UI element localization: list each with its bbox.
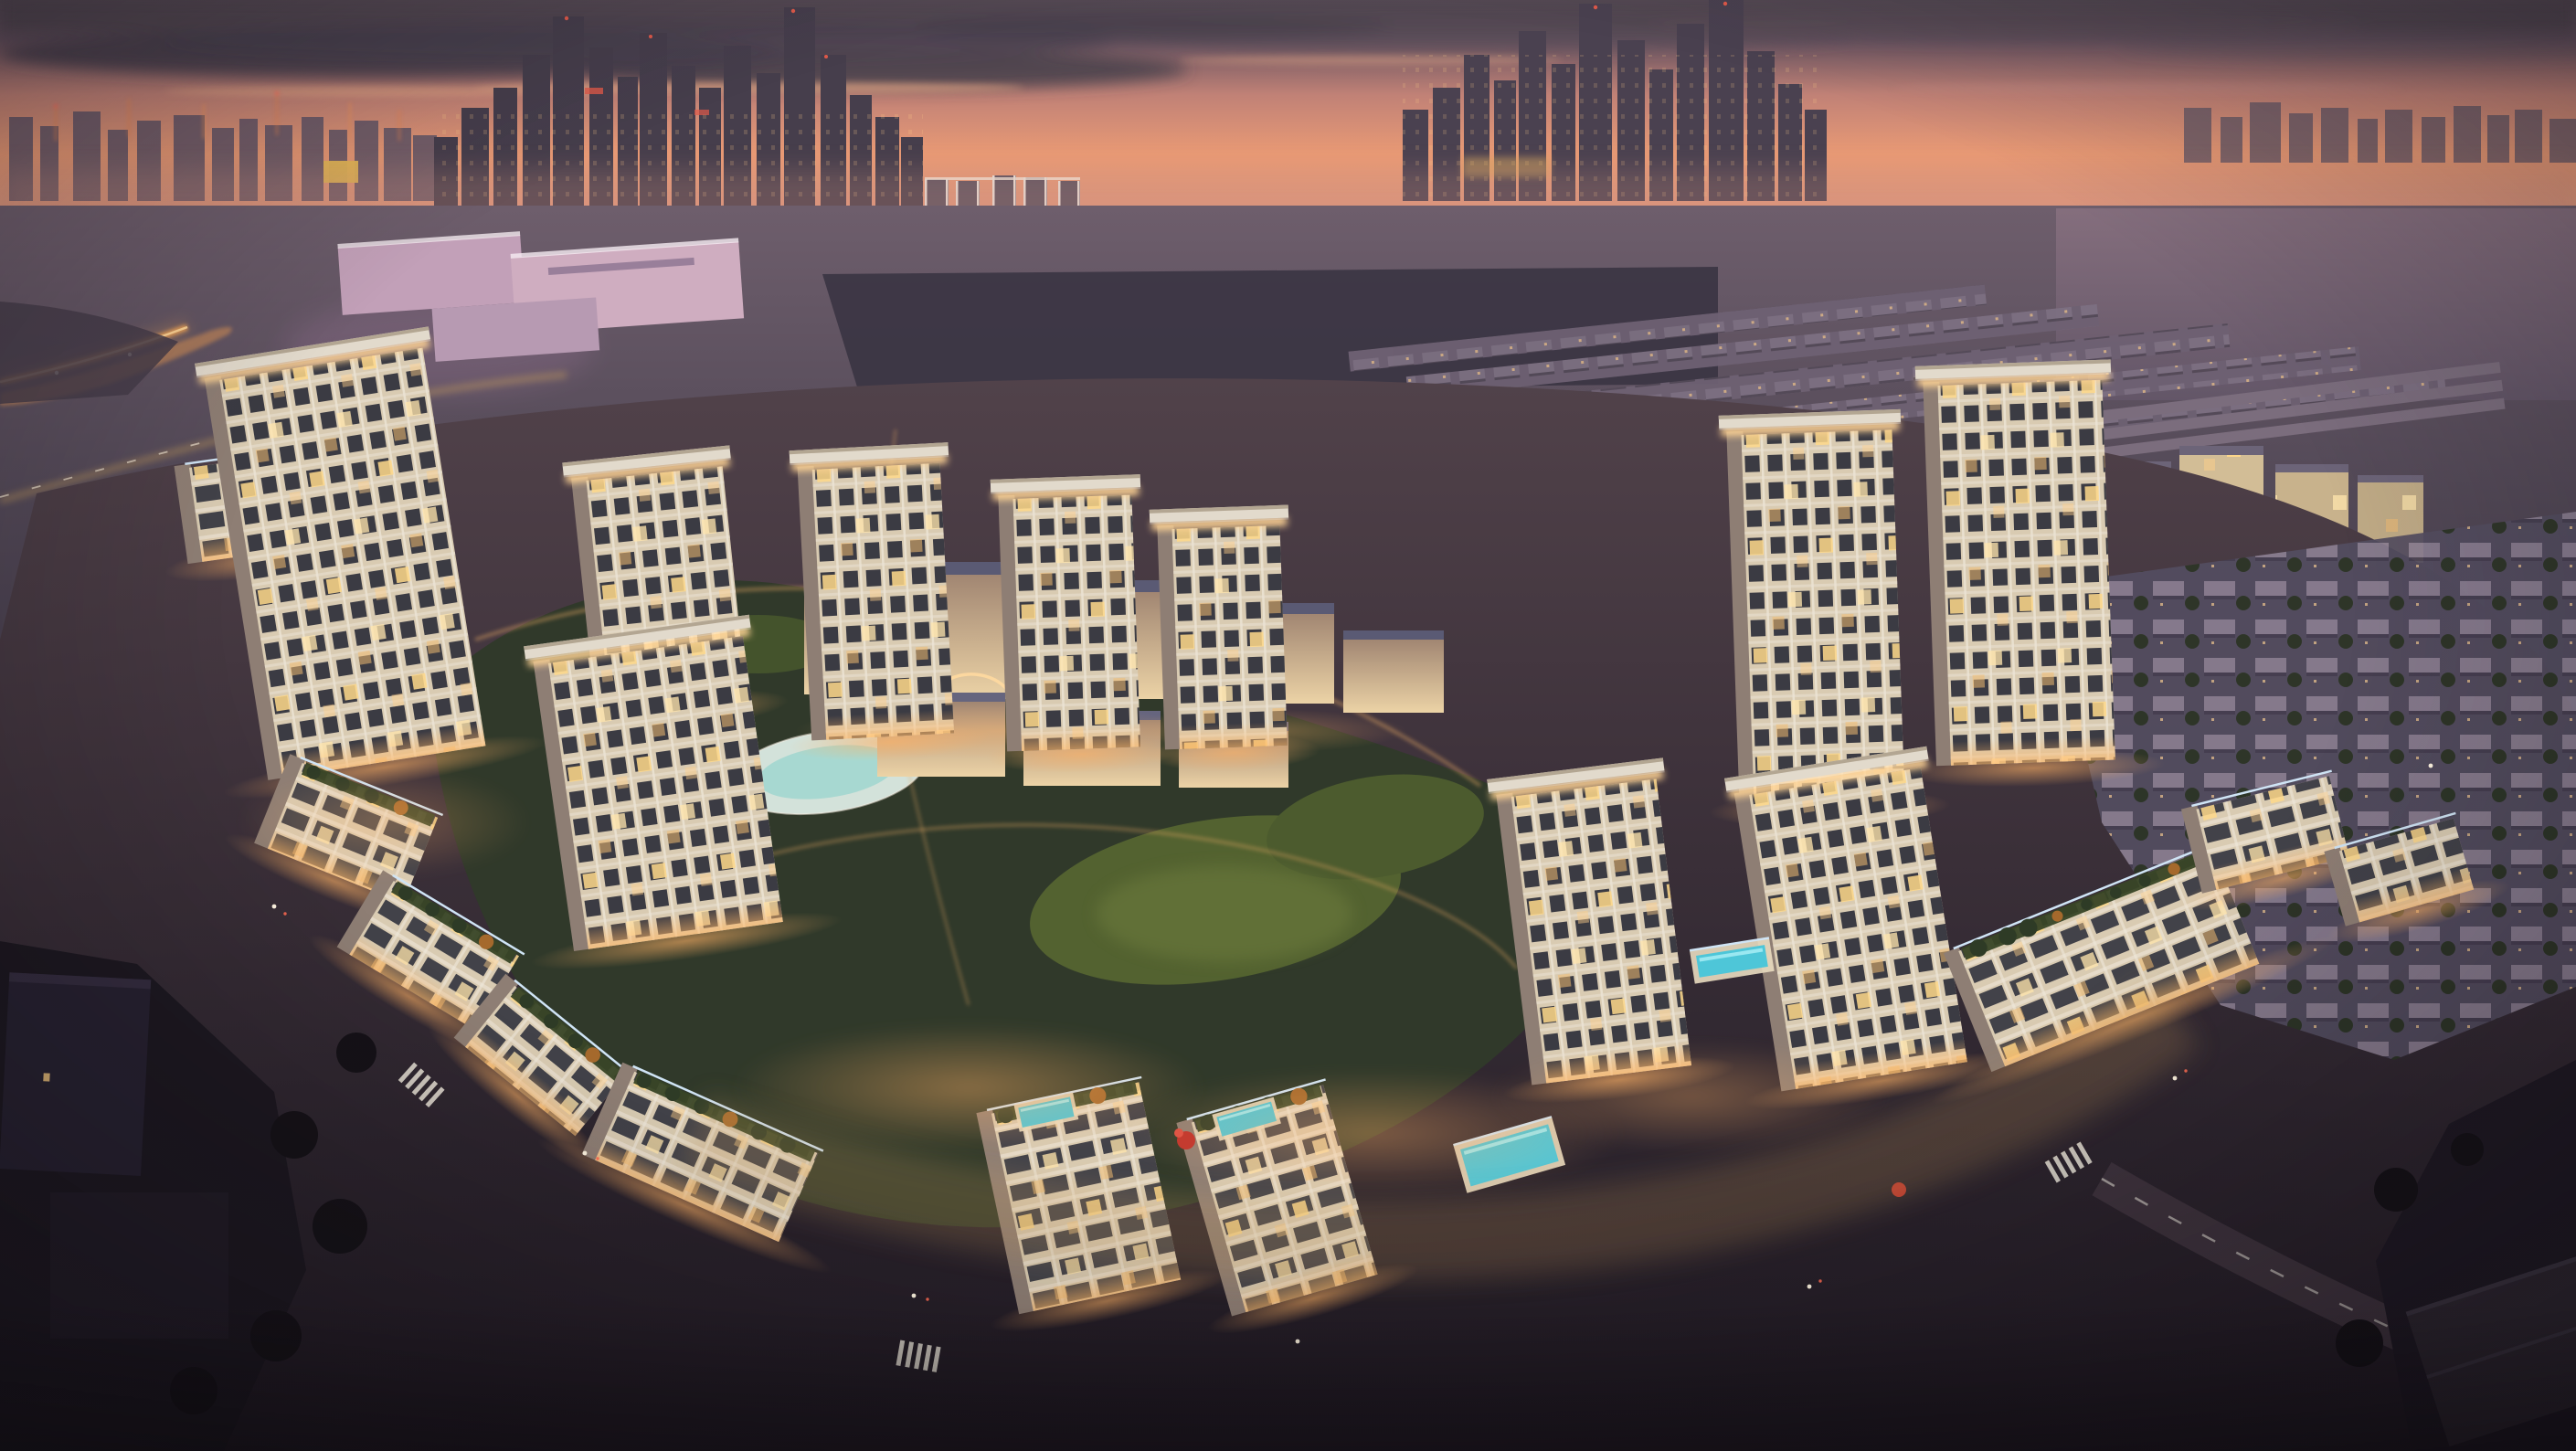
dusk-aerial-rendering: IKEA ACE: [0, 0, 2576, 1451]
vignette: [0, 0, 2576, 1451]
scene-canvas: IKEA ACE: [0, 0, 2576, 1451]
bottom-fade: [0, 1305, 2576, 1451]
